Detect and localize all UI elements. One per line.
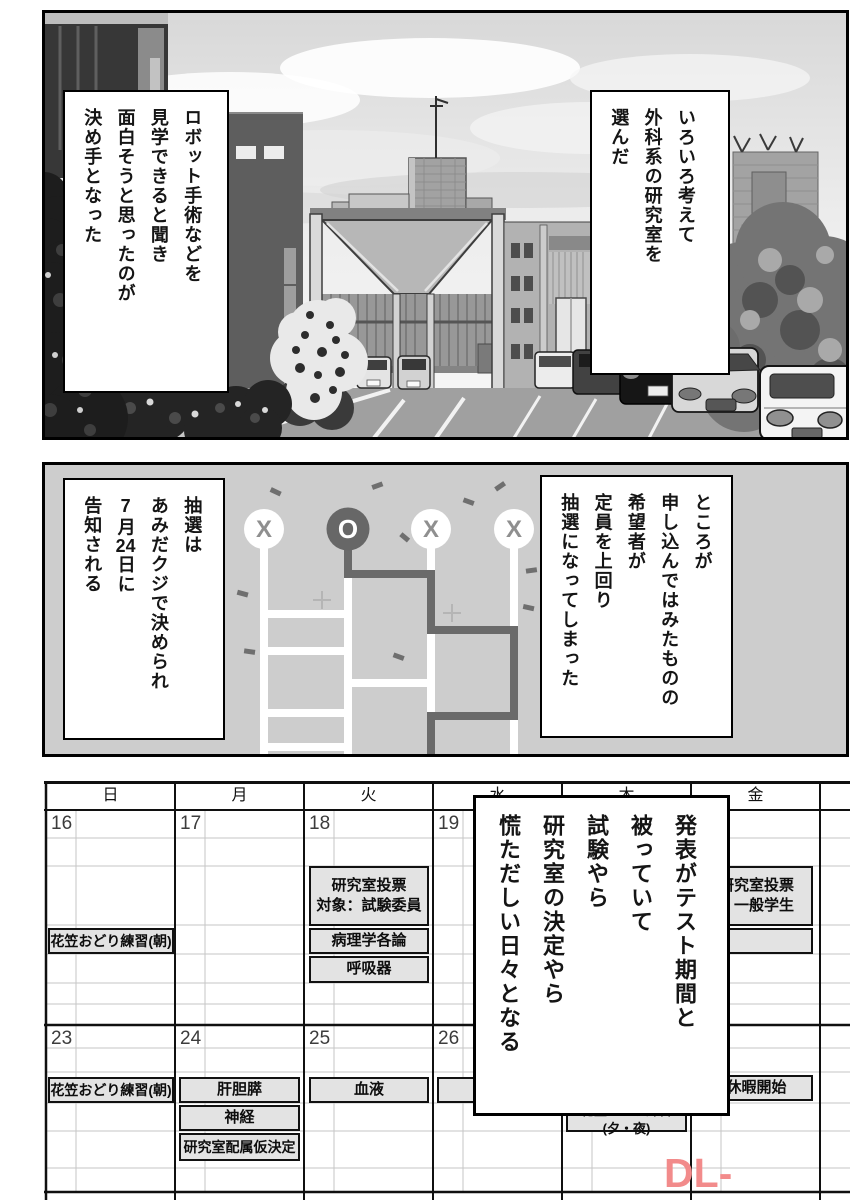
day-header-sun: 日 — [46, 784, 175, 808]
speech-bubble-robot-surgery: ロボット手術などを 見学できると聞き 面白そうと思ったのが 決め手となった — [63, 90, 229, 393]
event-hanagasa-practice-morning-w2: 花笠おどり練習(朝) — [48, 1077, 174, 1103]
event-nerve: 神経 — [179, 1105, 300, 1131]
narration-line: 被っていて — [618, 814, 662, 1097]
slot-mark-x: X — [506, 516, 522, 543]
speech-bubble-chose-surgery-lab: いろいろ考えて 外科系の研究室を 選んだ — [590, 90, 730, 375]
manga-page: ロボット手術などを 見学できると聞き 面白そうと思ったのが 決め手となった いろ… — [0, 0, 850, 1200]
event-hepatobiliary: 肝胆膵 — [179, 1077, 300, 1103]
date-17: 17 — [180, 813, 201, 835]
narration-line: 慌ただしい日々となる — [486, 814, 530, 1097]
bubble-line: 決め手となった — [75, 108, 108, 375]
narration-box-over-capacity: ところが 申し込んではみたものの 希望者が 定員を上回り 抽選になってしまった — [540, 475, 733, 738]
narration-line: 試験やら — [574, 814, 618, 1097]
date-25: 25 — [309, 1028, 330, 1050]
narration-line: 抽選は — [175, 496, 208, 722]
date-26: 26 — [438, 1028, 459, 1050]
bubble-line: ロボット手術などを — [175, 108, 208, 375]
date-23: 23 — [51, 1028, 72, 1050]
narration-line: あみだクジで決められ — [142, 496, 175, 722]
narration-line: ところが — [685, 493, 718, 720]
narration-line: 希望者が — [619, 493, 652, 720]
narration-box-busy-days: 発表がテスト期間と 被っていて 試験やら 研究室の決定やら 慌ただしい日々となる — [473, 795, 730, 1116]
event-hanagasa-practice-morning-w1: 花笠おどり練習(朝) — [48, 928, 174, 954]
lottery-slots: X O X X — [244, 508, 534, 551]
event-pathology-lecture: 病理学各論 — [309, 928, 429, 954]
bubble-line: 見学できると聞き — [142, 108, 175, 375]
event-lab-vote-committee: 研究室投票 対象：試験委員 — [309, 866, 429, 926]
bubble-line: いろいろ考えて — [669, 108, 702, 357]
narration-line: 申し込んではみたものの — [652, 493, 685, 720]
day-header-tue: 火 — [304, 784, 433, 808]
site-watermark: DL-Raw.Se — [664, 1150, 850, 1200]
ladder-lines — [264, 548, 514, 757]
event-lab-assignment-decision: 研究室配属仮決定 — [179, 1133, 300, 1161]
slot-mark-o: O — [338, 514, 358, 544]
narration-line: 研究室の決定やら — [530, 814, 574, 1097]
event-blood: 血液 — [309, 1077, 429, 1103]
day-header-mon: 月 — [175, 784, 304, 808]
bubble-line: 面白そうと思ったのが — [108, 108, 141, 375]
narration-line: 抽選になってしまった — [552, 493, 585, 720]
event-respiratory: 呼吸器 — [309, 956, 429, 983]
narration-line: 定員を上回り — [585, 493, 618, 720]
slot-mark-x: X — [423, 516, 439, 543]
date-16: 16 — [51, 813, 72, 835]
date-19: 19 — [438, 813, 459, 835]
bubble-line: 選んだ — [602, 108, 635, 357]
date-24: 24 — [180, 1028, 201, 1050]
narration-line: 7月24日に — [108, 496, 141, 722]
date-18: 18 — [309, 813, 330, 835]
narration-line: 告知される — [75, 496, 108, 722]
narration-box-lottery-date: 抽選は あみだクジで決められ 7月24日に 告知される — [63, 478, 225, 740]
slot-mark-x: X — [256, 516, 272, 543]
narration-line: 発表がテスト期間と — [662, 814, 706, 1097]
bubble-line: 外科系の研究室を — [635, 108, 668, 357]
